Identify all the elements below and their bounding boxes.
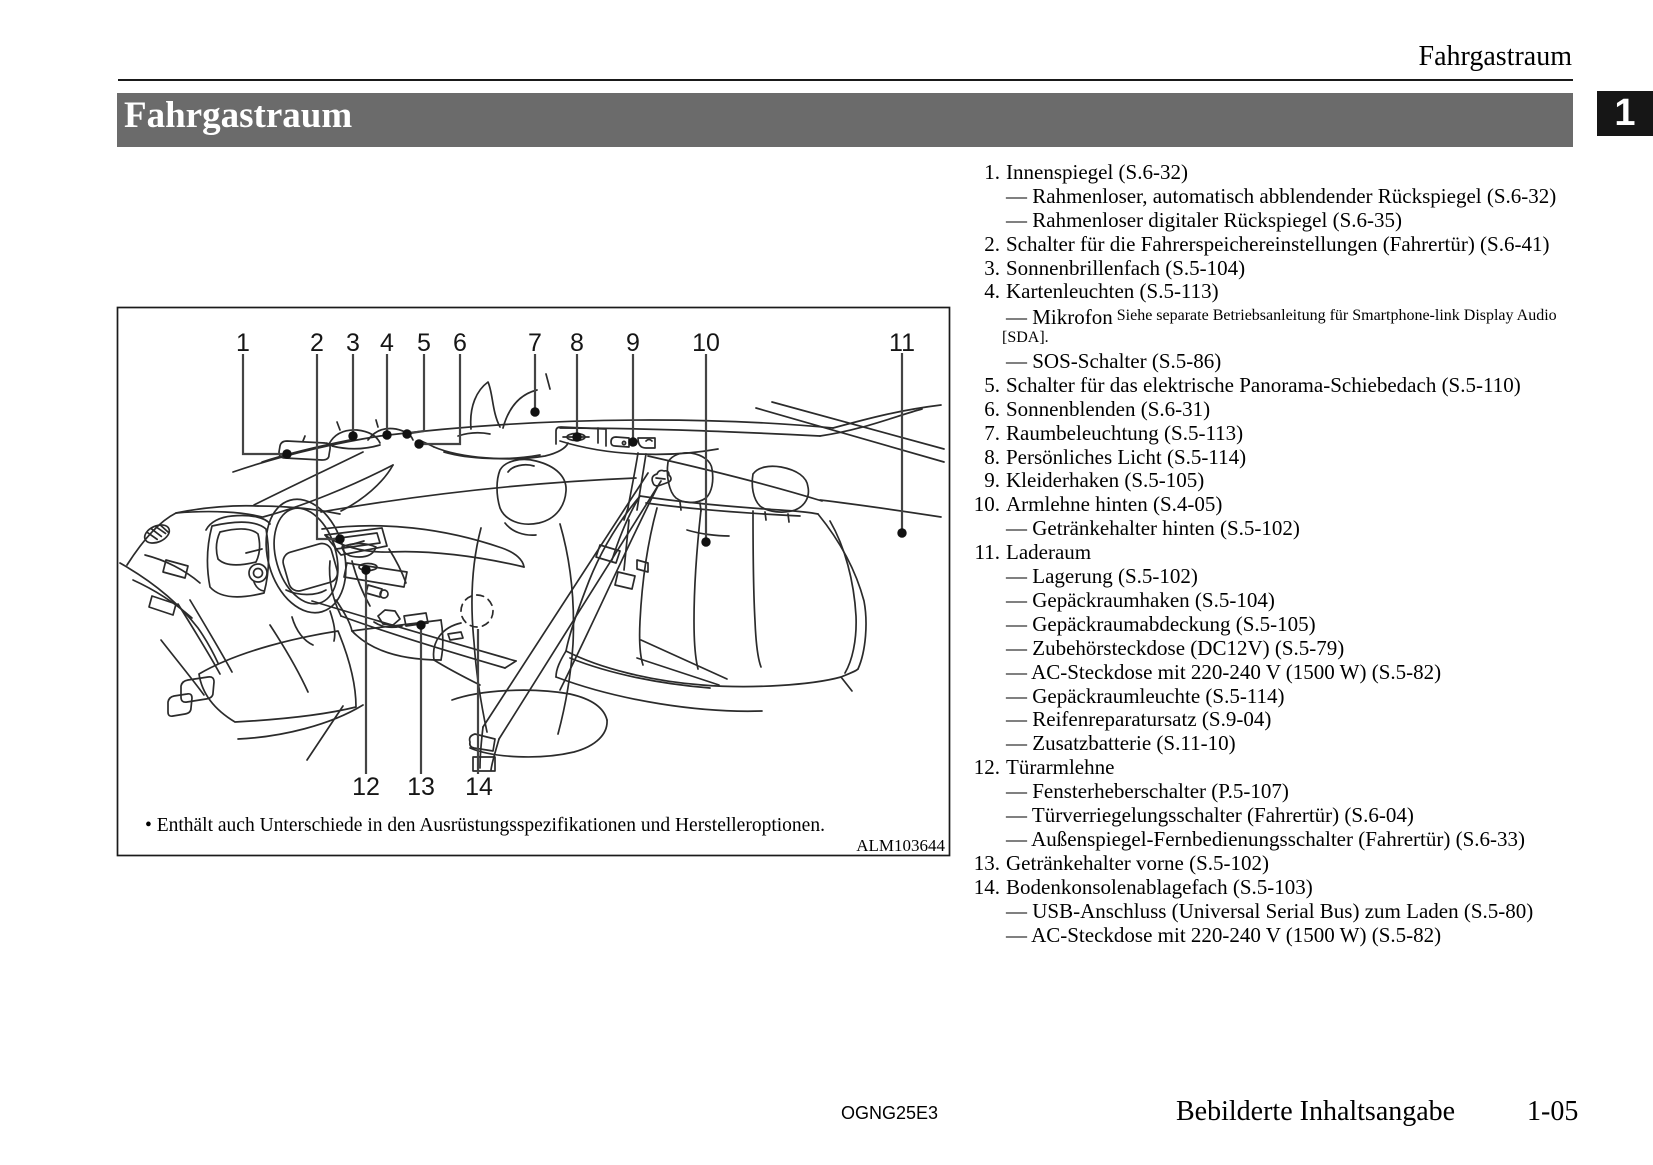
svg-text:2: 2 (310, 329, 324, 357)
svg-text:11: 11 (889, 329, 915, 357)
svg-text:14: 14 (465, 773, 493, 801)
svg-text:• Enthält auch Unterschiede in: • Enthält auch Unterschiede in den Ausrü… (145, 815, 825, 836)
svg-text:9: 9 (626, 329, 640, 357)
svg-text:3: 3 (346, 329, 360, 357)
svg-text:12: 12 (352, 773, 380, 801)
svg-text:4: 4 (380, 329, 394, 357)
svg-text:1: 1 (236, 329, 250, 357)
svg-text:5: 5 (417, 329, 431, 357)
svg-text:ALM103644: ALM103644 (856, 836, 945, 855)
svg-text:13: 13 (407, 773, 435, 801)
svg-text:7: 7 (528, 329, 542, 357)
svg-text:8: 8 (570, 329, 584, 357)
svg-text:6: 6 (453, 329, 467, 357)
svg-text:10: 10 (692, 329, 720, 357)
